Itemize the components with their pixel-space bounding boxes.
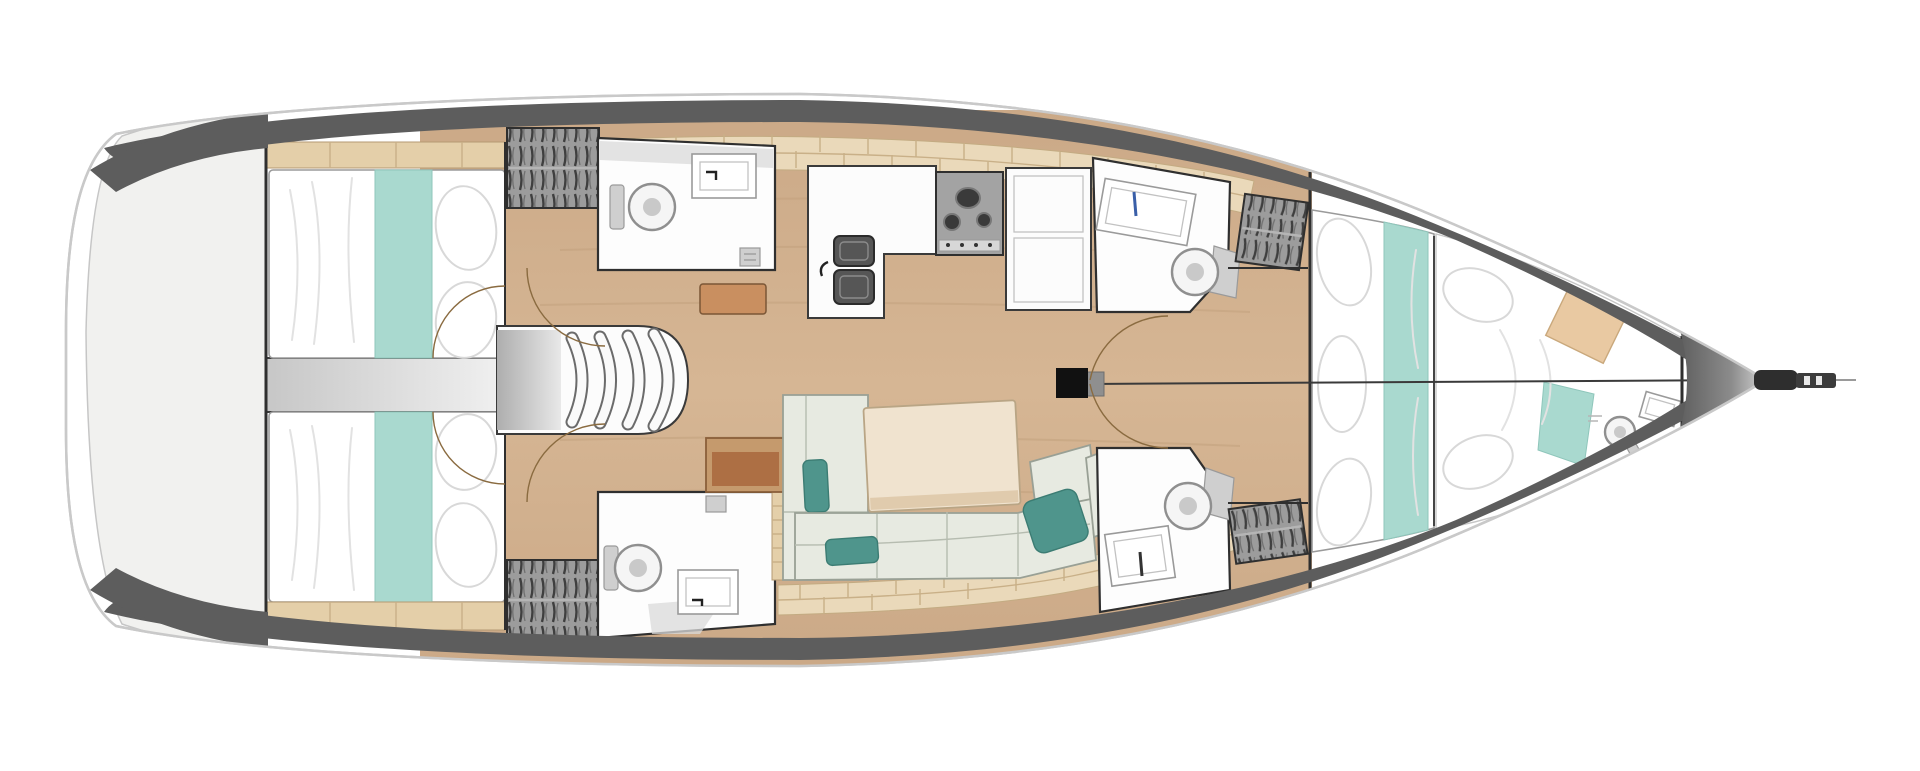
vent-panel [740,248,760,266]
pillow [1318,336,1366,432]
transom-platform [86,108,266,652]
floor-plan-stage [0,0,1920,771]
forepeak-bedding [1538,382,1594,466]
hanging-locker-fwd-port [1236,194,1309,270]
bed-runner-aft-starboard [375,412,432,602]
hanging-locker-aft-port [507,128,599,208]
head-aft-port [598,138,775,270]
mast [1056,368,1088,398]
companionway-stairs [497,326,688,434]
interior [86,100,1759,666]
bow-anchor-roller [1754,370,1856,390]
hanging-locker-fwd-starboard [1229,499,1308,563]
head-forward-starboard [1097,448,1234,612]
toilet-tank [610,185,624,229]
sink [678,570,738,614]
fridge [1006,168,1091,310]
hanging-locker-aft-starboard [507,560,599,640]
bed-runner-aft-port [375,170,432,358]
aft-cabin-port [267,142,505,362]
burner [944,214,960,230]
galley-end-shelf [700,284,766,314]
dining-table [863,400,1020,512]
engine-corridor [267,358,497,412]
mast-step [1086,372,1104,396]
floor-plan-svg [0,0,1920,771]
burner [956,188,980,208]
aft-cabin-starboard [267,410,505,630]
bow-anchor-locker [1680,330,1759,430]
head-aft-starboard [598,492,775,638]
burner [977,213,991,227]
settee-cushion [803,459,830,512]
chart-table [706,438,785,492]
sink [692,154,756,198]
settee-cushion [825,536,879,566]
head-forward-port [1093,158,1240,312]
faucet-icon [1134,192,1136,216]
vent-panel [706,496,726,512]
